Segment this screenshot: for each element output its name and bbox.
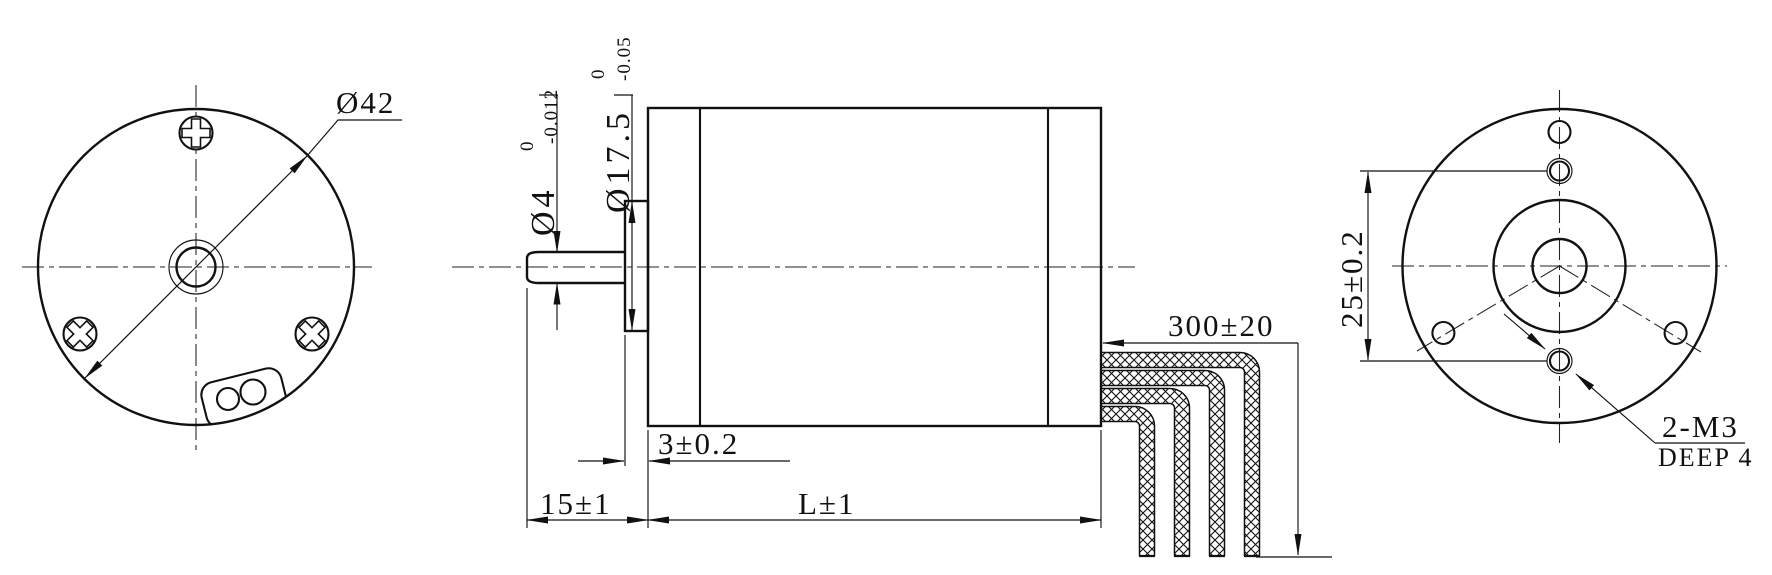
lead-wires (1101, 360, 1260, 556)
shaft-diameter-upper-tol: 0 (517, 141, 538, 152)
wire-length-label: 300±20 (1168, 308, 1275, 343)
side-view: Ø4 0 -0.012 Ø17.5 0 -0.05 3±0.2 1 (452, 36, 1332, 557)
thread-depth-label: DEEP 4 (1658, 443, 1754, 472)
pilot-diameter-value: Ø17.5 (600, 109, 637, 213)
front-view: Ø42 (22, 85, 402, 450)
motor-dimension-drawing: Ø42 (0, 0, 1772, 575)
shaft-diameter-dimension: Ø4 0 -0.012 (517, 89, 562, 330)
length-dimensions: 15±1 L±1 (527, 288, 1101, 528)
mounting-screw-left-icon (57, 311, 104, 358)
mounting-screw-right-icon (289, 311, 336, 358)
body-length-label: L±1 (798, 486, 855, 521)
pilot-diameter-upper-tol: 0 (588, 69, 609, 80)
rear-view: 25±0.2 2-M3 DEEP 4 (1334, 90, 1754, 472)
outer-diameter-label: Ø42 (336, 85, 395, 120)
bolt-hole-lower-right (1665, 322, 1687, 344)
diameter-leader-line (307, 120, 402, 156)
shaft-diameter-lower-tol: -0.012 (541, 89, 562, 144)
pilot-length-dimension: 3±0.2 (578, 335, 790, 466)
pilot-diameter-lower-tol: -0.05 (614, 36, 635, 81)
pilot-diameter-dimension: Ø17.5 0 -0.05 (588, 36, 637, 330)
grommet-outline (199, 366, 290, 430)
hole-spacing-label: 25±0.2 (1334, 229, 1369, 328)
hole-centerline-right (1560, 266, 1702, 352)
shaft-diameter-value: Ø4 (525, 186, 562, 236)
drawing-svg: Ø42 (0, 0, 1772, 575)
wire-hole-left (217, 388, 239, 410)
wire-hole-right (241, 380, 266, 405)
bolt-hole-lower-left (1432, 322, 1454, 344)
thread-note: 2-M3 DEEP 4 (1504, 314, 1754, 472)
mounting-screw-top-icon (180, 117, 213, 150)
thread-spec-label: 2-M3 (1662, 409, 1739, 444)
pilot-boss (625, 201, 648, 331)
pilot-length-label: 3±0.2 (658, 426, 739, 461)
wire-grommet-tab (199, 366, 290, 430)
shaft-extension-label: 15±1 (540, 486, 612, 521)
hole-centerline-left (1417, 266, 1560, 351)
